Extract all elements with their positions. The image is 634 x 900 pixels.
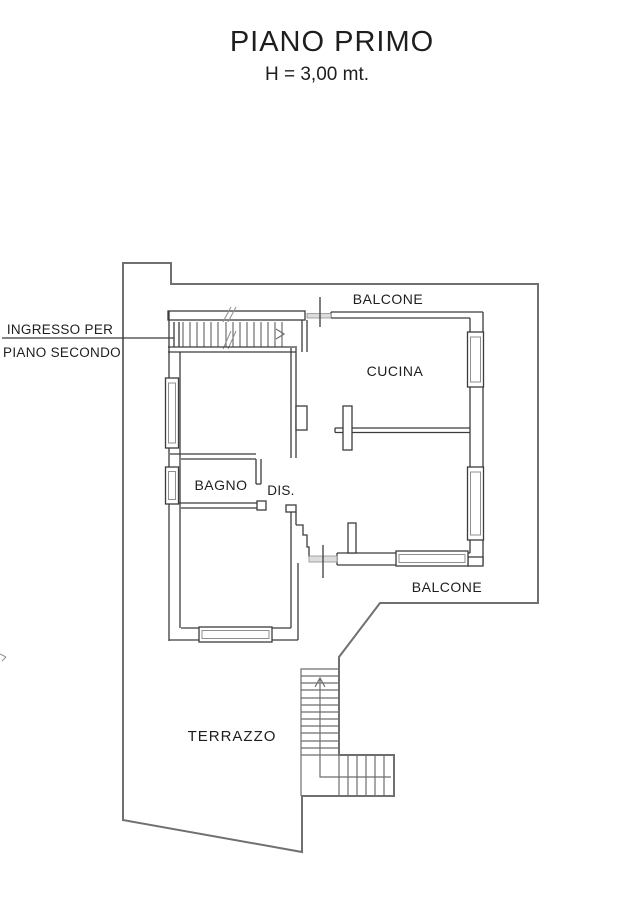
label-bagno: BAGNO [194, 477, 247, 493]
terrace-stairs [301, 669, 394, 796]
window-south-room [199, 627, 272, 642]
window-west-bagno [166, 467, 179, 504]
label-terrazzo: TERRAZZO [188, 728, 277, 745]
room-labels: BALCONE CUCINA BAGNO DIS. BALCONE TERRAZ… [188, 291, 483, 745]
door-south-balcony [309, 545, 337, 578]
label-balcone-top: BALCONE [353, 291, 423, 307]
label-cucina: CUCINA [367, 363, 424, 379]
label-dis: DIS. [267, 483, 294, 498]
label-entrance-line2: PIANO SECONDO [3, 345, 121, 360]
window-west-top [166, 378, 179, 448]
stair-direction-arrow-icon [276, 329, 284, 339]
page-title: PIANO PRIMO [230, 26, 434, 58]
floor-plan-page: PIANO PRIMO H = 3,00 mt. [0, 0, 634, 900]
stair-walk-line [320, 679, 391, 777]
door-north-balcony [307, 297, 331, 327]
window-east-kitchen [468, 332, 484, 387]
label-entrance-line1: INGRESSO PER [7, 322, 113, 337]
edge-mark [0, 654, 6, 661]
floor-plan-svg: PIANO PRIMO H = 3,00 mt. [0, 0, 634, 900]
page-subtitle: H = 3,00 mt. [265, 64, 369, 85]
interior-walls [170, 348, 470, 640]
window-east-living [468, 467, 484, 540]
window-south-living [396, 551, 468, 566]
annotations: INGRESSO PER PIANO SECONDO [0, 322, 174, 661]
entrance-stairs [168, 307, 305, 349]
label-balcone-bottom: BALCONE [412, 579, 482, 595]
door-bagno-leaf [256, 459, 261, 484]
